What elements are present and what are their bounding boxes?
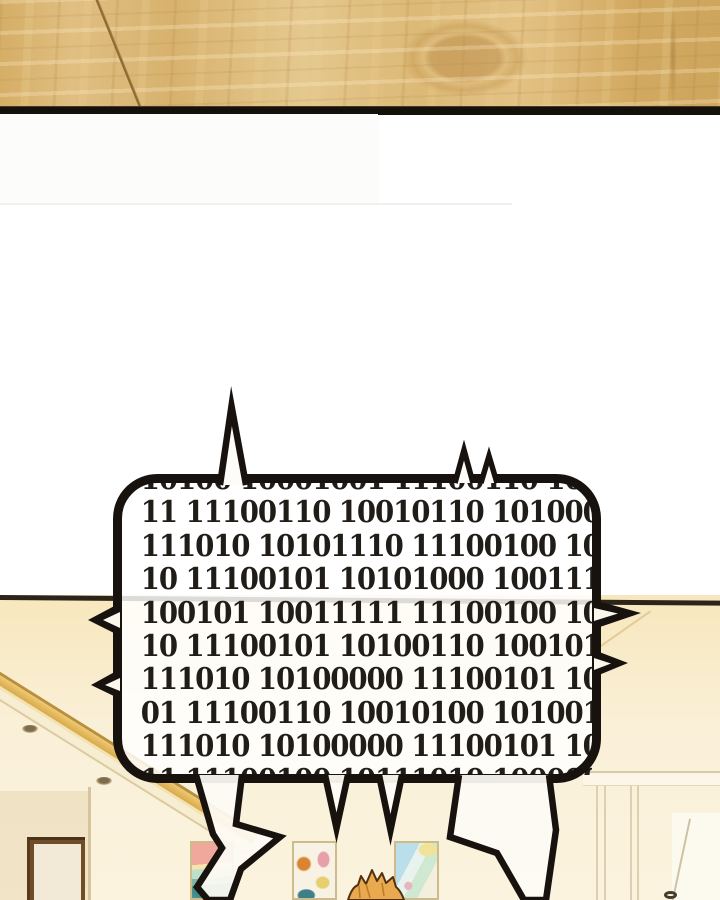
door-trim-line <box>604 786 606 900</box>
faint-white-panel <box>0 114 378 204</box>
comic-panel: 10100 10001001 11100110 10 11 11100110 1… <box>0 0 720 900</box>
binary-line: 11 11100100 10111010 1000001 <box>141 764 573 775</box>
binary-line: 11 11100110 10010110 1010000 <box>141 496 573 529</box>
binary-line: 111010 10100000 11100101 101 <box>141 730 573 763</box>
binary-line: 100101 10011111 11100100 101 <box>141 597 573 630</box>
binary-line: 10100 10001001 11100110 10 <box>141 483 573 496</box>
door-trim-line <box>630 786 632 900</box>
white-door <box>672 813 720 900</box>
picture-frame-middle <box>292 841 337 900</box>
door-trim-line <box>596 786 598 900</box>
wood-grain-line <box>668 0 678 114</box>
gold-molding-right <box>597 610 651 648</box>
wood-grain-texture <box>0 0 720 114</box>
door-handle <box>664 891 677 899</box>
recessed-light <box>22 725 38 733</box>
wood-floor-panel <box>0 0 720 114</box>
speech-bubble-text: 10100 10001001 11100110 10 11 11100110 1… <box>122 483 592 775</box>
binary-line: 111010 10100000 11100101 101 <box>141 663 573 696</box>
recessed-light <box>96 777 112 785</box>
binary-line: 01 11100110 10010100 1010010 <box>141 697 573 730</box>
binary-line: 111010 10101110 11100100 101 <box>141 530 573 563</box>
wall-corner-line <box>88 787 91 900</box>
character-hair <box>346 868 406 900</box>
door-trim-line <box>637 786 639 900</box>
door-frame-top-rail <box>583 771 720 786</box>
binary-line: 10 11100101 10100110 1001011 <box>141 630 573 663</box>
picture-frame-left <box>190 841 234 900</box>
wall-mirror <box>27 837 85 900</box>
faint-panel-edge <box>0 203 512 205</box>
binary-line: 10 11100101 10101000 1001110 <box>141 563 573 596</box>
